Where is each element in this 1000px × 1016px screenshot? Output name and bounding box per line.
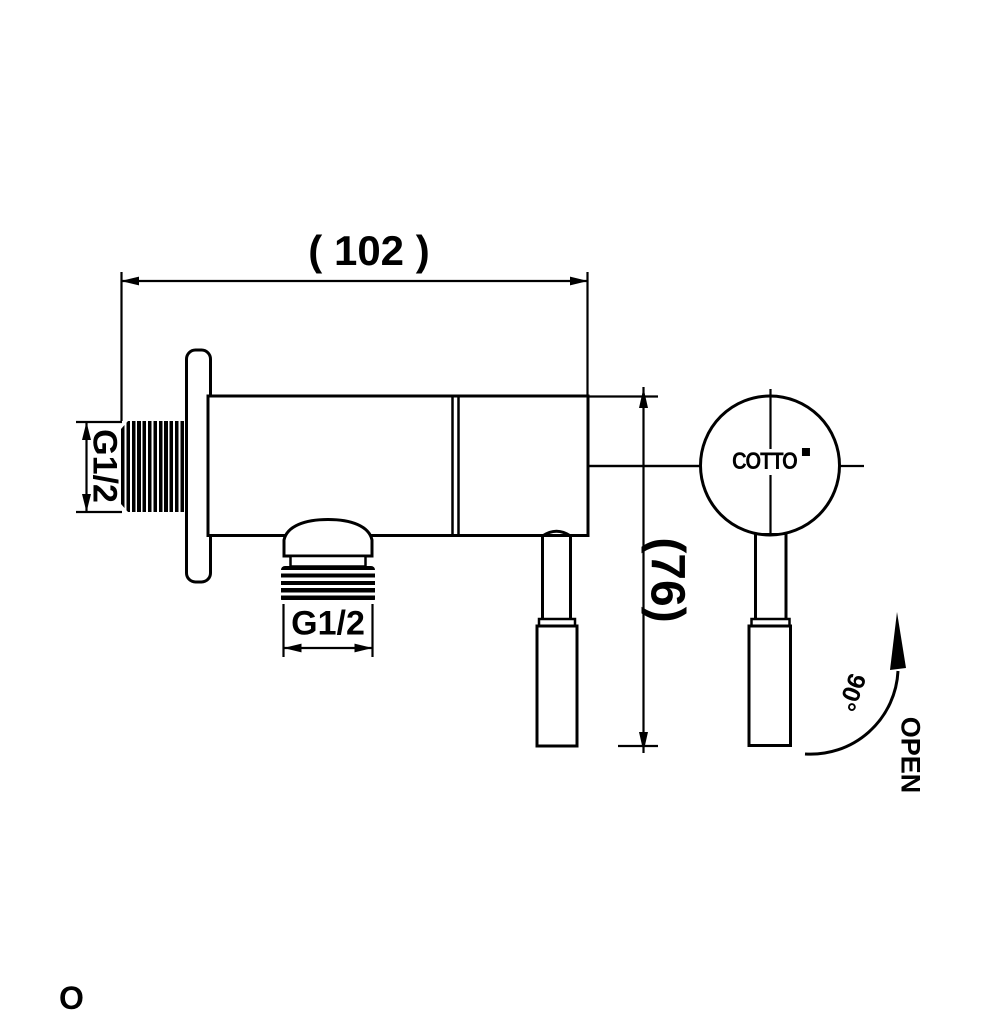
rotation-angle-label: 90° [831,669,871,714]
technical-drawing-page: { "drawing_labels": { "width_dimension":… [0,0,1000,1000]
bottom-left-partial-letter: O [59,982,84,1014]
cotto-logo-text: COTTO [732,450,797,474]
drawing-labels: ( 102 ) G1/2 G1/2 (76) 90° OPEN O COTTO [0,0,1000,1000]
height-dimension-label: (76) [640,537,695,622]
inlet-thread-label: G1/2 [85,429,124,503]
trademark-square-icon [802,448,810,456]
width-dimension-label: ( 102 ) [308,227,429,275]
cotto-logo: COTTO [729,449,813,475]
open-direction-label: OPEN [895,717,926,794]
outlet-thread-label: G1/2 [291,605,365,644]
